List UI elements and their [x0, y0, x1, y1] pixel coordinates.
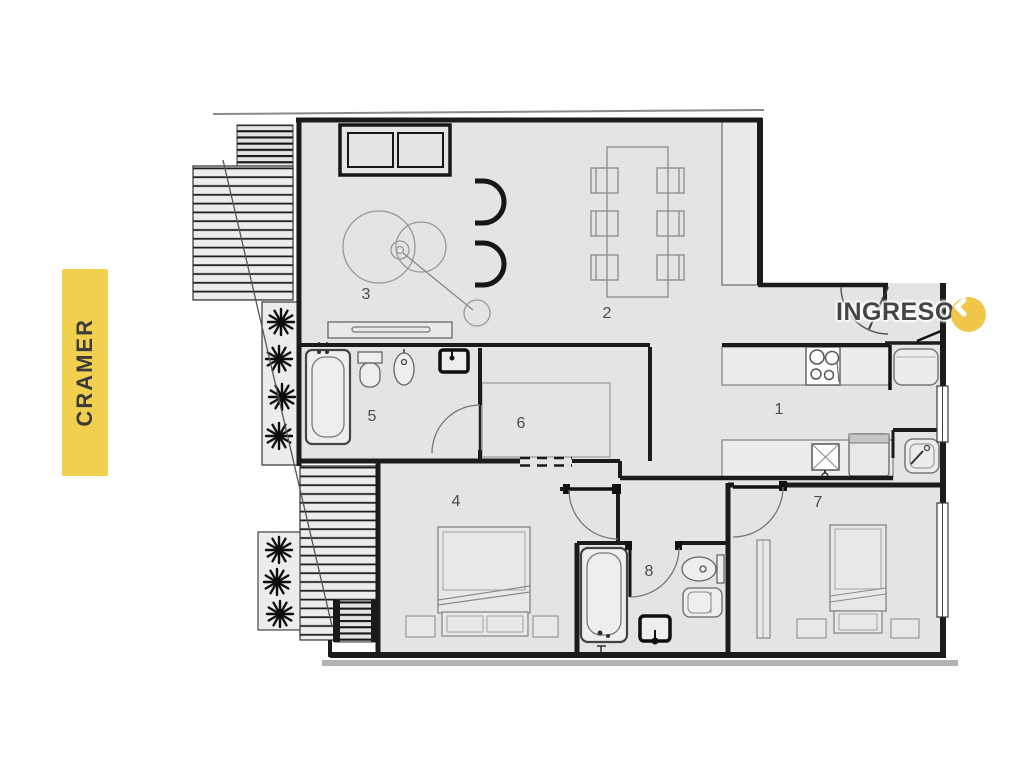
kitchen-sink	[890, 345, 938, 390]
deck-upper	[237, 125, 293, 168]
balcony-upper	[193, 166, 293, 300]
toilet	[682, 555, 724, 583]
wardrobe	[757, 540, 770, 638]
stove	[806, 347, 840, 385]
washbasin	[440, 350, 468, 372]
washbasin	[640, 616, 670, 645]
nightstand	[891, 619, 919, 638]
room-label-bedroom-1: 4	[452, 493, 461, 511]
bathtub	[581, 548, 627, 653]
window	[937, 503, 948, 617]
duct-shaft	[722, 120, 758, 285]
bidet	[683, 588, 722, 617]
laundry-sink	[905, 439, 939, 473]
room-label-bathroom-1: 5	[368, 408, 377, 426]
room-label-bathroom-2: 8	[645, 563, 654, 581]
nightstand	[797, 619, 826, 638]
room-label-living: 3	[362, 286, 371, 304]
nightstand	[533, 616, 558, 637]
floor-plan-page: CRAMER	[0, 0, 1024, 768]
floor-plan-svg	[0, 0, 1024, 768]
roof-edge-line	[213, 110, 764, 114]
chevron-left-icon	[951, 297, 986, 332]
room-label-bedroom-2: 7	[814, 494, 823, 512]
toilet	[358, 352, 382, 387]
planter-box	[262, 302, 300, 465]
room-label-kitchen: 1	[775, 401, 784, 419]
room-label-dining: 2	[603, 305, 612, 323]
balcony-lower	[258, 466, 378, 642]
sofa	[340, 125, 450, 175]
bed	[438, 527, 530, 636]
nightstand	[406, 616, 435, 637]
entry-label: INGRESO	[836, 298, 955, 327]
bathtub	[306, 342, 350, 444]
ground-shadow	[322, 660, 958, 666]
dishwasher	[849, 434, 889, 476]
window	[937, 386, 948, 442]
sideboard	[328, 322, 452, 338]
bed	[830, 525, 886, 633]
room-label-hall: 6	[517, 415, 526, 433]
